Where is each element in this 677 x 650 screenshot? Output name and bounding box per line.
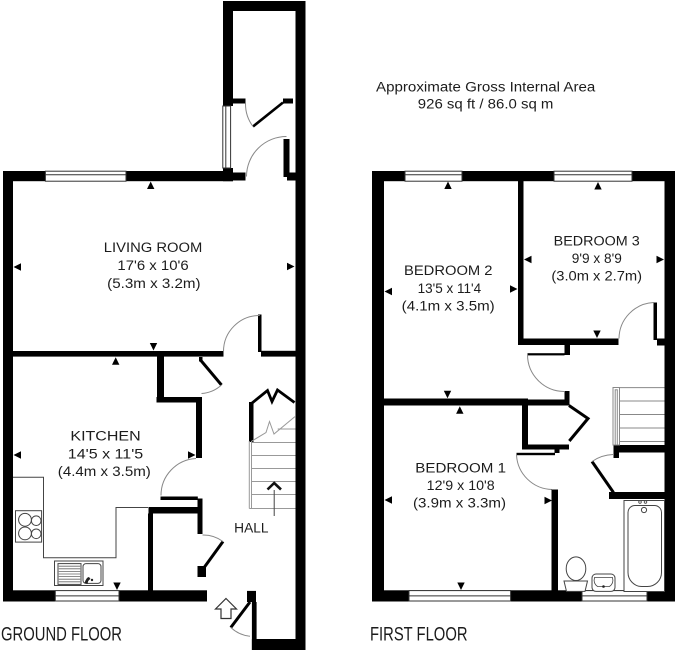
- svg-text:LIVING ROOM: LIVING ROOM: [104, 240, 203, 255]
- svg-text:(3.9m x 3.3m): (3.9m x 3.3m): [413, 496, 506, 511]
- svg-text:BEDROOM 2: BEDROOM 2: [404, 263, 493, 278]
- svg-text:12'9 x 10'8: 12'9 x 10'8: [427, 478, 495, 493]
- svg-text:(3.0m x 2.7m): (3.0m x 2.7m): [551, 269, 642, 284]
- svg-text:KITCHEN: KITCHEN: [70, 429, 140, 444]
- svg-text:(5.3m x 3.2m): (5.3m x 3.2m): [107, 276, 200, 291]
- svg-text:17'6 x 10'6: 17'6 x 10'6: [117, 258, 188, 273]
- svg-text:13'5 x 11'4: 13'5 x 11'4: [418, 281, 482, 296]
- svg-text:(4.4m x 3.5m): (4.4m x 3.5m): [58, 464, 151, 479]
- svg-text:FIRST FLOOR: FIRST FLOOR: [370, 624, 468, 646]
- svg-text:9'9 x 8'9: 9'9 x 8'9: [572, 251, 622, 266]
- svg-text:GROUND FLOOR: GROUND FLOOR: [1, 624, 122, 646]
- svg-text:BEDROOM 3: BEDROOM 3: [554, 234, 640, 249]
- svg-text:14'5 x 11'5: 14'5 x 11'5: [68, 447, 143, 462]
- svg-text:BEDROOM 1: BEDROOM 1: [415, 461, 506, 476]
- svg-text:(4.1m x 3.5m): (4.1m x 3.5m): [402, 299, 495, 314]
- svg-text:Approximate Gross Internal Are: Approximate Gross Internal Area: [376, 80, 596, 95]
- svg-text:HALL: HALL: [234, 521, 269, 536]
- svg-text:926 sq ft / 86.0 sq m: 926 sq ft / 86.0 sq m: [418, 97, 554, 112]
